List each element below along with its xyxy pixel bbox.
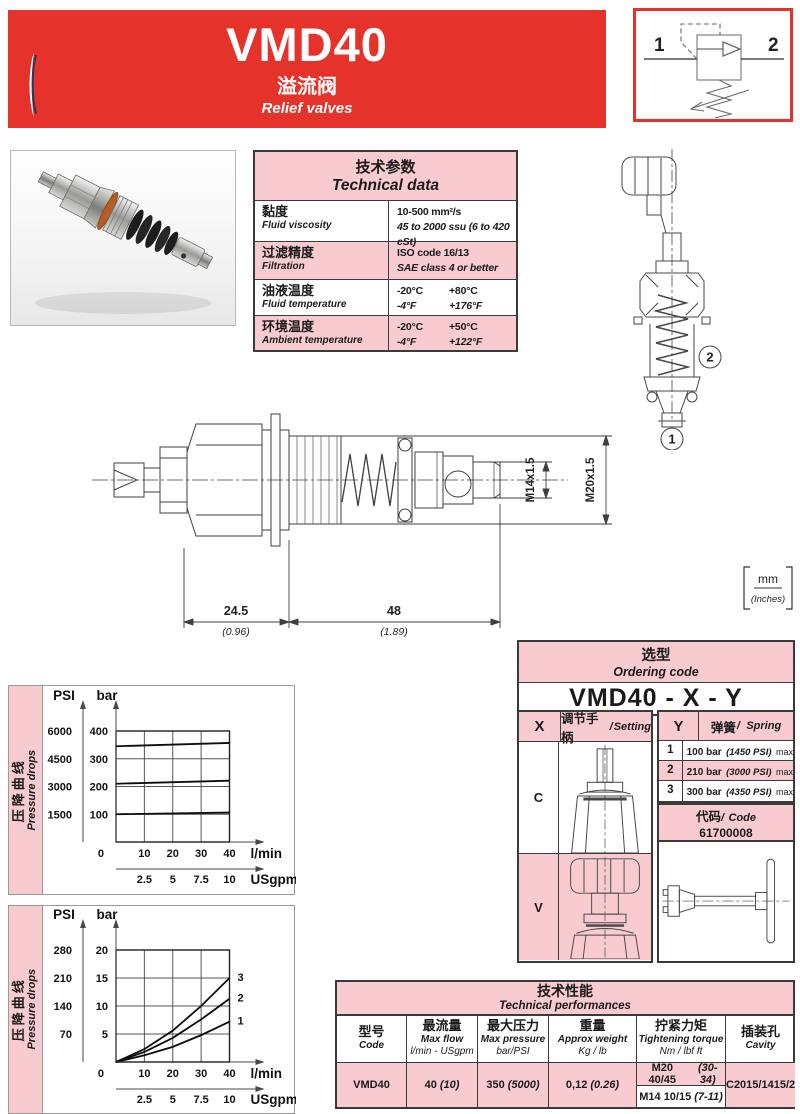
column-header: 最流量 Max flow l/min - USgpm <box>407 1016 478 1063</box>
arrowhead <box>256 1059 265 1065</box>
temp-max-f: +176°F <box>449 300 482 312</box>
thread-small-label: M14x1.5 <box>525 457 537 502</box>
column-header: 型号 Code <box>337 1016 407 1063</box>
table-row: 黏度 Fluid viscosity 10-500 mm²/s 45 to 20… <box>255 201 516 242</box>
label-cn: 过滤精度 <box>262 245 388 261</box>
code-box-label: 代码/ Code <box>659 806 793 826</box>
max-flow: 40 <box>425 1079 437 1091</box>
tick-label: 2.5 <box>137 1094 152 1106</box>
pressure-drops-chart-2: 510152070140210280102030402.557.5100PSIb… <box>9 906 296 1113</box>
dim-a-in: (0.96) <box>222 626 249 638</box>
callout-2-label: 2 <box>706 350 713 365</box>
torque-m14-lbf: (7-11) <box>694 1091 723 1103</box>
usgpm-axis-title: USgpm <box>251 872 297 887</box>
setting-option-c-code: C <box>519 742 559 853</box>
tick-label: 10 <box>138 848 150 860</box>
spring-option-row: 3 300 bar (4350 PSI) max <box>659 781 793 801</box>
setting-option-v-row: V <box>519 854 651 960</box>
spring-option-row: 2 210 bar (3000 PSI) max <box>659 761 793 781</box>
relief-valve-symbol-icon: 1 2 <box>636 11 790 119</box>
tick-label: 280 <box>54 945 72 957</box>
spring-pressure: 100 bar <box>687 747 722 758</box>
origin-label: 0 <box>98 848 104 860</box>
technical-data-title-cn: 技术参数 <box>255 156 516 177</box>
tick-label: 2.5 <box>137 874 152 886</box>
label-cn: 黏度 <box>262 204 388 220</box>
torque-m20-lbf: (30-34) <box>691 1062 725 1086</box>
lmin-axis-title: l/min <box>251 1066 283 1081</box>
spring-option-row: 1 100 bar (1450 PSI) max <box>659 741 793 761</box>
psi-axis-title: PSI <box>53 688 75 703</box>
tick-label: 4500 <box>48 754 72 766</box>
arrowhead <box>80 700 86 709</box>
value-line-1: ISO code 16/13 <box>397 246 516 261</box>
spring-option-code: 2 <box>659 761 683 780</box>
tick-label: 140 <box>54 1001 72 1013</box>
tick-label: 300 <box>90 754 108 766</box>
col-en: Tightening torque <box>638 1034 724 1046</box>
row-value: -20°C+80°C -4°F+176°F <box>389 280 516 315</box>
temp-min: -20°C <box>397 284 449 299</box>
column-header: 最大压力 Max pressure bar/PSI <box>478 1016 549 1063</box>
lmin-axis-title: l/min <box>251 846 283 861</box>
row-label: 过滤精度 Filtration <box>255 242 389 279</box>
col-sub: l/min - USgpm <box>408 1046 476 1058</box>
technical-data-title-en: Technical data <box>255 177 516 195</box>
tick-label: 7.5 <box>193 874 208 886</box>
model-code: VMD40 <box>353 1079 390 1091</box>
row-value: 10-500 mm²/s 45 to 2000 ssu (6 to 420 cS… <box>389 201 516 241</box>
spring-option-desc: 210 bar (3000 PSI) max <box>683 761 793 780</box>
tick-label: 10 <box>96 1001 108 1013</box>
psi-axis-title: PSI <box>53 907 75 922</box>
tick-label: 20 <box>167 848 179 860</box>
dim-b-mm: 48 <box>387 604 401 618</box>
tick-label: 210 <box>54 973 72 985</box>
technical-performances-table: 技术性能 Technical performances 型号 Code 最流量 … <box>335 980 795 1109</box>
spring-max: max <box>776 767 793 777</box>
usgpm-axis-title: USgpm <box>251 1092 297 1107</box>
setting-option-c-drawing <box>559 742 651 853</box>
cartridge-outline <box>622 149 710 427</box>
symbol-port-2-label: 2 <box>768 35 779 56</box>
crescent-edge <box>33 55 36 114</box>
code-label-cn: 代码 <box>696 810 721 824</box>
performances-title-cn: 技术性能 <box>337 983 793 1000</box>
value-line-2: -4°F+122°F <box>397 335 516 350</box>
units-inches-label: (Inches) <box>751 594 785 605</box>
setting-option-v-drawing <box>559 854 651 960</box>
setting-tool-box <box>657 840 795 963</box>
brand-crescent-icon <box>24 50 44 120</box>
col-cn: 拧紧力矩 <box>638 1019 724 1034</box>
torque-m20: M20 40/45(30-34) <box>637 1063 725 1085</box>
tick-label: 40 <box>223 848 235 860</box>
spring-option-code: 1 <box>659 741 683 760</box>
col-en: Approx weight <box>550 1034 635 1046</box>
spring-label-cn: 弹簧 <box>711 717 736 736</box>
col-cn: 最大压力 <box>479 1019 547 1034</box>
series-end-label: 3 <box>238 972 244 984</box>
tick-label: 6000 <box>48 726 72 738</box>
table-row: 环境温度 Ambient temperature -20°C+50°C -4°F… <box>255 316 516 350</box>
dimension-drawing: 24.5 (0.96) 48 (1.89) M14x1.5 M20x1.5 <box>90 400 640 640</box>
tick-label: 5 <box>170 1094 176 1106</box>
col-sub: Kg / lb <box>550 1046 635 1058</box>
tick-label: 30 <box>195 1068 207 1080</box>
arrowhead <box>256 839 265 845</box>
data-cell-code: VMD40 <box>337 1063 407 1107</box>
column-header: 重量 Approx weight Kg / lb <box>549 1016 637 1063</box>
units-mm-label: mm <box>758 572 778 586</box>
value-line-2: SAE class 4 or better <box>397 261 516 276</box>
product-photo <box>10 150 236 326</box>
setting-header-label: 调节手柄/Setting <box>561 712 651 741</box>
t-handle-tool-icon <box>659 842 793 961</box>
bar-axis-title: bar <box>96 907 118 922</box>
row-label: 黏度 Fluid viscosity <box>255 201 389 241</box>
data-cell-cavity: C2015/1415/2 <box>726 1063 795 1107</box>
arrowhead <box>80 919 86 928</box>
data-cell-torque: M20 40/45(30-34) M14 10/15(7-11) <box>637 1063 726 1107</box>
cavity-code: C2015/1415/2 <box>726 1079 795 1091</box>
table-row: 油液温度 Fluid temperature -20°C+80°C -4°F+1… <box>255 280 516 316</box>
tick-label: 10 <box>138 1068 150 1080</box>
separator: / <box>737 720 740 732</box>
setting-option-c-row: C <box>519 742 651 854</box>
temp-max: +50°C <box>449 321 478 333</box>
tick-label: 10 <box>223 874 235 886</box>
col-cn: 最流量 <box>408 1019 476 1034</box>
page-subtitle-en: Relief valves <box>262 100 353 117</box>
symbol-port-1-label: 1 <box>654 35 665 56</box>
data-cell-pressure: 350(5000) <box>478 1063 549 1107</box>
col-en: Max flow <box>408 1034 476 1046</box>
label-en: Fluid temperature <box>262 299 388 310</box>
valve-photo-illustration <box>11 151 235 325</box>
table-row: 过滤精度 Filtration ISO code 16/13 SAE class… <box>255 242 516 280</box>
label-en: Filtration <box>262 261 388 272</box>
right-bracket <box>786 567 792 609</box>
torque-m14-value: M14 10/15 <box>639 1091 691 1103</box>
technical-data-header: 技术参数 Technical data <box>255 152 516 201</box>
label-en: Fluid viscosity <box>262 220 388 231</box>
dim-b-in: (1.89) <box>380 626 407 638</box>
tick-label: 7.5 <box>193 1094 208 1106</box>
max-pressure-psi: (5000) <box>508 1079 540 1091</box>
spring-psi: (4350 PSI) <box>726 787 771 798</box>
spring-option-code: 3 <box>659 781 683 801</box>
max-pressure: 350 <box>486 1079 504 1091</box>
setting-option-v-code: V <box>519 854 559 960</box>
ordering-title-cn: 选型 <box>519 644 793 665</box>
spring-pressure: 210 bar <box>687 767 722 778</box>
ordering-code-section: 选型 Ordering code VMD40 - X - Y X 调节手柄/Se… <box>517 640 795 963</box>
col-en: Code <box>338 1040 405 1052</box>
pressure-drops-panel-2: 压降曲线 Pressure drops 51015207014021028010… <box>8 905 295 1114</box>
origin-label: 0 <box>98 1068 104 1080</box>
row-value: -20°C+50°C -4°F+122°F <box>389 316 516 350</box>
separator: / <box>721 812 724 824</box>
temp-max-f: +122°F <box>449 336 482 348</box>
tick-label: 20 <box>96 945 108 957</box>
label-cn: 环境温度 <box>262 319 388 335</box>
code-label-en: Code <box>729 812 757 824</box>
spring-psi: (3000 PSI) <box>726 767 771 778</box>
tick-label: 20 <box>167 1068 179 1080</box>
spring-max: max <box>776 747 793 757</box>
technical-data-table: 技术参数 Technical data 黏度 Fluid viscosity 1… <box>253 150 518 352</box>
col-sub: Nm / lbf ft <box>638 1046 724 1058</box>
tick-label: 400 <box>90 726 108 738</box>
tick-label: 3000 <box>48 782 72 794</box>
value-line-1: -20°C+50°C <box>397 320 516 335</box>
col-sub: bar/PSI <box>479 1046 547 1058</box>
spring-option-desc: 300 bar (4350 PSI) max <box>683 781 793 801</box>
spring-label-en: Spring <box>746 720 781 732</box>
code-value: 61700008 <box>659 826 793 840</box>
performances-title-en: Technical performances <box>337 1000 793 1013</box>
performances-header: 技术性能 Technical performances <box>337 982 793 1016</box>
row-value: ISO code 16/13 SAE class 4 or better <box>389 242 516 279</box>
setting-subtable: X 调节手柄/Setting C <box>517 710 653 963</box>
screw-adjustment-icon <box>559 743 651 853</box>
value-line-1: -20°C+80°C <box>397 284 516 299</box>
temp-min-f: -4°F <box>397 335 449 350</box>
col-cn: 重量 <box>550 1019 635 1034</box>
tick-label: 100 <box>90 809 108 821</box>
valve-outline <box>92 414 568 546</box>
pressure-drops-panel-1: 压降曲线 Pressure drops 10020030040015003000… <box>8 685 295 895</box>
performances-grid: 型号 Code 最流量 Max flow l/min - USgpm 最大压力 … <box>337 1016 793 1107</box>
callout-1-label: 1 <box>668 432 675 447</box>
tick-label: 70 <box>60 1029 72 1041</box>
temp-min-f: -4°F <box>397 299 449 314</box>
page-subtitle-cn: 溢流阀 <box>277 70 337 99</box>
label-en: Ambient temperature <box>262 335 388 346</box>
tick-label: 10 <box>223 1094 235 1106</box>
symbol-drawing <box>644 24 784 118</box>
tick-label: 30 <box>195 848 207 860</box>
tick-label: 1500 <box>48 809 72 821</box>
setting-label-cn: 调节手柄 <box>561 708 609 746</box>
value-line-1: 10-500 mm²/s <box>397 205 516 220</box>
hydraulic-symbol-box: 1 2 <box>633 8 793 122</box>
bar-axis-title: bar <box>96 688 118 703</box>
valve-body-art <box>31 158 219 281</box>
setting-label-en: Setting <box>614 721 651 733</box>
setting-header-row: X 调节手柄/Setting <box>519 712 651 742</box>
datasheet-page: VMD40 溢流阀 Relief valves 1 2 <box>0 0 800 1114</box>
series-end-label: 2 <box>238 993 244 1005</box>
tick-label: 5 <box>170 874 176 886</box>
weight-kg: 0,12 <box>566 1079 587 1091</box>
separator: / <box>610 721 613 733</box>
header-banner: VMD40 溢流阀 Relief valves <box>8 10 606 128</box>
spring-header-label: 弹簧/ Spring <box>699 712 793 740</box>
tick-label: 15 <box>96 973 108 985</box>
temp-max: +80°C <box>449 285 478 297</box>
spring-pressure: 300 bar <box>687 787 722 798</box>
torque-m20-value: M20 40/45 <box>637 1062 688 1086</box>
data-cell-flow: 40(10) <box>407 1063 478 1107</box>
units-box: mm (Inches) <box>740 563 796 613</box>
thread-large-label: M20x1.5 <box>585 457 597 502</box>
data-cell-weight: 0,12(0.26) <box>549 1063 637 1107</box>
dim-a-mm: 24.5 <box>224 604 248 618</box>
ordering-header: 选型 Ordering code VMD40 - X - Y <box>517 640 795 716</box>
max-flow-usgpm: (10) <box>440 1079 460 1091</box>
ordering-title: 选型 Ordering code <box>519 642 793 683</box>
col-en: Max pressure <box>479 1034 547 1046</box>
photo-shadow <box>35 292 211 314</box>
page-title: VMD40 <box>226 21 388 69</box>
col-cn: 型号 <box>338 1025 405 1040</box>
left-bracket <box>744 567 750 609</box>
column-header: 插装孔 Cavity <box>726 1016 795 1063</box>
tick-label: 200 <box>90 782 108 794</box>
value-line-2: -4°F+176°F <box>397 299 516 314</box>
col-en: Cavity <box>727 1040 794 1052</box>
spring-header-row: Y 弹簧/ Spring <box>659 712 793 741</box>
temp-min: -20°C <box>397 320 449 335</box>
ordering-title-en: Ordering code <box>519 665 793 679</box>
spring-subtable: Y 弹簧/ Spring 1 100 bar (1450 PSI) max 2 … <box>657 710 795 803</box>
column-header: 拧紧力矩 Tightening torque Nm / lbf ft <box>637 1016 726 1063</box>
weight-lb: (0.26) <box>590 1079 619 1091</box>
spring-max: max <box>776 787 793 797</box>
spring-psi: (1450 PSI) <box>726 747 771 758</box>
tick-label: 40 <box>223 1068 235 1080</box>
row-label: 油液温度 Fluid temperature <box>255 280 389 315</box>
pressure-drops-chart-1: 1002003004001500300045006000102030402.55… <box>9 686 296 894</box>
series-end-label: 1 <box>238 1016 244 1028</box>
row-label: 环境温度 Ambient temperature <box>255 316 389 350</box>
spring-option-desc: 100 bar (1450 PSI) max <box>683 741 793 760</box>
tick-label: 5 <box>102 1029 108 1041</box>
y-column-header: Y <box>659 712 699 740</box>
handknob-adjustment-icon <box>559 855 651 959</box>
x-column-header: X <box>519 712 561 741</box>
code-box: 代码/ Code 61700008 <box>657 803 795 845</box>
col-cn: 插装孔 <box>727 1025 794 1040</box>
torque-m14: M14 10/15(7-11) <box>637 1085 725 1107</box>
label-cn: 油液温度 <box>262 283 388 299</box>
